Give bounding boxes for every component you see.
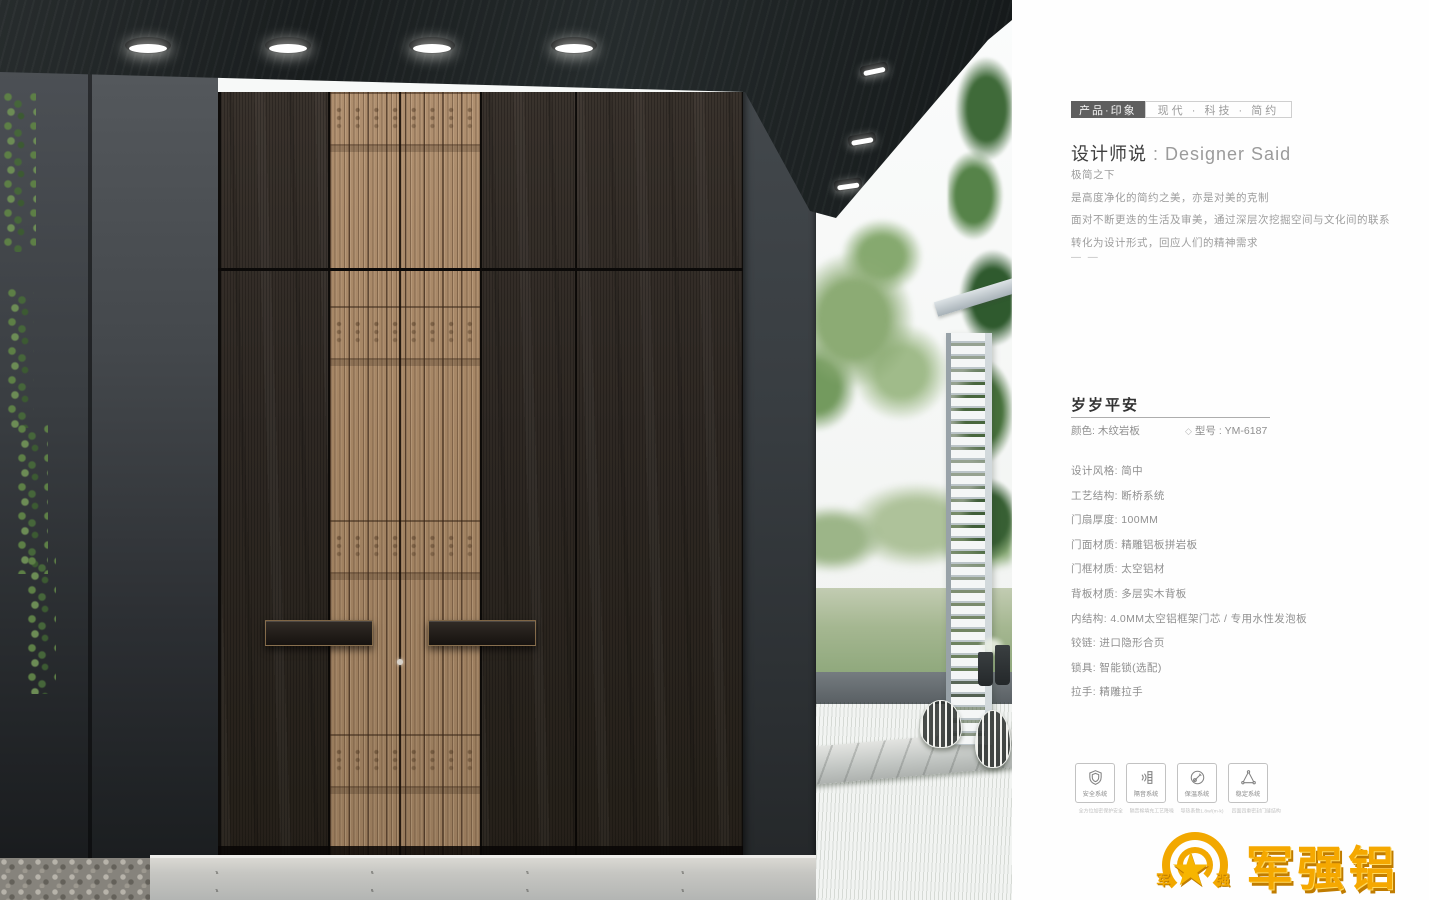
spec-item: 拉手: 精雕拉手: [1071, 680, 1307, 705]
gem-icon: ◇: [1185, 426, 1192, 436]
entry-side-wall: [92, 74, 218, 858]
designer-title-cn: 设计师说: [1071, 144, 1147, 164]
feature-badges: 安全系统 全方位加密保护安全 隔音系统 隔音棉填充工艺降噪: [1075, 763, 1268, 815]
feature-stability: 稳定系统 四面四重密封门缝结构: [1228, 763, 1268, 815]
designer-line: 极简之下: [1071, 164, 1390, 187]
designer-statement: 极简之下 是高度净化的简约之美，亦是对美的克制 面对不断更迭的生活及审美，通过深…: [1071, 164, 1390, 254]
product-info-panel: 产品·印象 现代 · 科技 · 简约 设计师说 : Designer Said …: [1012, 0, 1429, 900]
spec-item: 工艺结构: 断桥系统: [1071, 484, 1307, 509]
feature-caption: 导热系数1.8w/(m·k): [1181, 807, 1214, 814]
spec-item: 门扇厚度: 100MM: [1071, 508, 1307, 533]
brand-name: 军强铝艺: [1246, 830, 1429, 900]
insulation-icon: [1189, 769, 1206, 786]
door-keyhole: [397, 659, 403, 665]
feature-label: 隔音系统: [1134, 788, 1159, 798]
planter-pot: [995, 645, 1010, 685]
feature-box: 稳定系统: [1228, 763, 1268, 803]
feature-label: 稳定系统: [1236, 788, 1261, 798]
downlight-icon: [409, 37, 455, 54]
right-pillar: [743, 83, 816, 900]
product-model-label: 型号 : YM-6187: [1195, 425, 1267, 437]
feature-caption: 全方位加密保护安全: [1079, 807, 1112, 814]
catalog-page: 产品·印象 现代 · 科技 · 简约 设计师说 : Designer Said …: [0, 0, 1429, 900]
spec-item: 门面材质: 精雕铝板拼岩板: [1071, 533, 1307, 558]
feature-box: 安全系统: [1075, 763, 1115, 803]
wire-lantern: [920, 700, 962, 748]
feature-safety: 安全系统 全方位加密保护安全: [1075, 763, 1115, 815]
door-handle-left: [265, 620, 373, 646]
door-joint: [328, 92, 330, 855]
door-scene-photo: [0, 0, 1012, 900]
product-meta-row: 颜色: 木纹岩板 ◇型号 : YM-6187: [1071, 423, 1371, 438]
feature-insulation: 保温系统 导热系数1.8w/(m·k): [1177, 763, 1217, 815]
brand-logo: ★ 军 强 军强铝艺: [1150, 822, 1429, 900]
concrete-floor: [150, 855, 816, 900]
shield-icon: [1087, 769, 1104, 786]
door-wood-panel-left: [221, 92, 330, 855]
spec-item: 内结构: 4.0MM太空铝框架门芯 / 专用水性发泡板: [1071, 607, 1307, 632]
star-icon: ★: [1170, 842, 1211, 896]
stability-icon: [1240, 769, 1257, 786]
entrance-door: [218, 92, 745, 855]
door-handle-right: [428, 620, 536, 646]
downlight-icon: [847, 132, 876, 148]
section-badge: 产品·印象 现代 · 科技 · 简约: [1071, 101, 1292, 118]
door-joint: [480, 92, 482, 855]
product-model: ◇型号 : YM-6187: [1185, 423, 1267, 438]
designer-title-en: Designer Said: [1165, 144, 1291, 164]
feature-box: 保温系统: [1177, 763, 1217, 803]
designer-line: 面对不断更迭的生活及审美，通过深层次挖掘空间与文化间的联系: [1071, 209, 1390, 232]
feature-label: 保温系统: [1185, 788, 1210, 798]
hanging-vine: [16, 424, 48, 574]
door-wood-panel-right: [480, 92, 742, 855]
gravel-strip: [0, 858, 170, 900]
feature-caption: 隔音棉填充工艺降噪: [1130, 807, 1163, 814]
door-bronze-wheat-motifs: [330, 92, 480, 855]
product-name-underline: [1071, 417, 1270, 418]
hanging-vine: [6, 288, 34, 428]
door-transom-line: [218, 268, 745, 271]
soundproof-icon: [1138, 769, 1155, 786]
spec-item: 背板材质: 多层实木背板: [1071, 582, 1307, 607]
spec-item: 设计风格: 简中: [1071, 459, 1307, 484]
designer-line: 是高度净化的简约之美，亦是对美的克制: [1071, 187, 1390, 210]
emblem-char-qiang: 强: [1216, 870, 1230, 890]
designer-said-title: 设计师说 : Designer Said: [1071, 140, 1291, 166]
product-name: 岁岁平安: [1071, 394, 1139, 415]
feature-soundproof: 隔音系统 隔音棉填充工艺降噪: [1126, 763, 1166, 815]
product-color: 颜色: 木纹岩板: [1071, 425, 1140, 437]
downlight-icon: [551, 37, 597, 54]
downlight-icon: [859, 61, 889, 78]
downlight-icon: [125, 37, 171, 54]
door-threshold: [218, 846, 745, 855]
hanging-vine: [2, 92, 36, 252]
downlight-icon: [833, 177, 862, 192]
feature-box: 隔音系统: [1126, 763, 1166, 803]
designer-line: 转化为设计形式，回应人们的精神需求: [1071, 232, 1390, 255]
feature-label: 安全系统: [1083, 788, 1108, 798]
floor-joints: [150, 871, 816, 874]
downlight-icon: [265, 37, 311, 54]
badge-product-impression: 产品·印象: [1071, 101, 1145, 118]
floor-joints: [150, 889, 816, 892]
badge-keywords: 现代 · 科技 · 简约: [1145, 101, 1293, 118]
designer-title-sep: :: [1147, 144, 1165, 164]
spec-item: 锁具: 智能锁(选配): [1071, 656, 1307, 681]
hanging-vine: [26, 556, 56, 694]
designer-dashes: — —: [1071, 252, 1100, 263]
door-joint: [575, 92, 577, 855]
planter-pot: [978, 652, 993, 686]
feature-caption: 四面四重密封门缝结构: [1232, 807, 1265, 814]
spec-item: 门框材质: 太空铝材: [1071, 557, 1307, 582]
spec-item: 铰链: 进口隐形合页: [1071, 631, 1307, 656]
brand-emblem: ★ 军 强: [1150, 824, 1242, 898]
emblem-char-jun: 军: [1156, 870, 1170, 890]
door-center-split: [399, 92, 401, 855]
spec-list: 设计风格: 简中 工艺结构: 断桥系统 门扇厚度: 100MM 门面材质: 精雕…: [1071, 459, 1307, 705]
